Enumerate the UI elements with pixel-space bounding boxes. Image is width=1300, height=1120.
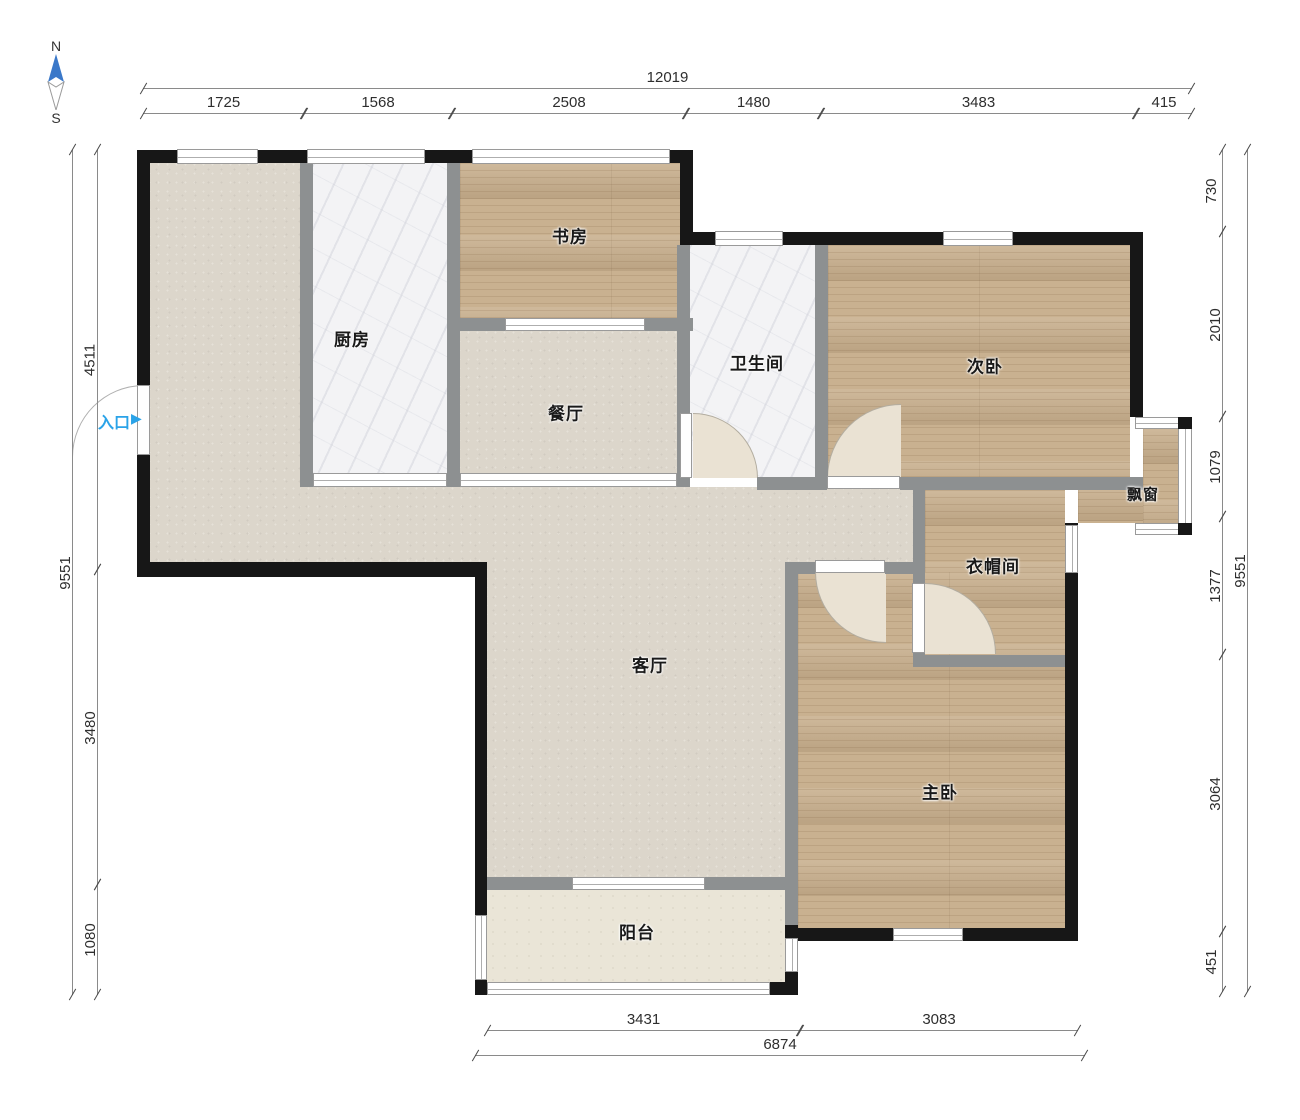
- sliding-door-kitchen: [313, 473, 447, 487]
- wall: [885, 562, 925, 574]
- sliding-door-dining: [460, 473, 677, 487]
- wall: [900, 477, 1143, 490]
- dim-segment: 1480: [686, 113, 821, 114]
- wall-exterior: [785, 970, 798, 995]
- compass-south-label: S: [36, 110, 76, 126]
- wall: [785, 562, 798, 928]
- dim-segment: 3480: [97, 570, 98, 885]
- wall-exterior: [790, 928, 893, 941]
- window: [472, 149, 670, 164]
- window-bay-right: [1178, 417, 1192, 535]
- dim-segment: 1079: [1222, 417, 1223, 517]
- floor-hallway: [150, 163, 300, 562]
- room-label-living-room: 客厅: [632, 652, 668, 677]
- floor-living-main: [487, 487, 690, 878]
- window: [715, 231, 783, 246]
- dim-segment: 415: [1136, 113, 1192, 114]
- wall-exterior: [137, 150, 150, 385]
- room-label-master-bedroom: 主卧: [922, 779, 958, 804]
- floor-corridor: [790, 487, 913, 562]
- dim-total-top: 12019: [143, 88, 1192, 89]
- dim-segment: 1080: [97, 885, 98, 995]
- sliding-door-balcony: [572, 877, 705, 890]
- window: [943, 231, 1013, 246]
- window: [177, 149, 258, 164]
- floor-plan: 书房 厨房 餐厅 卫生间 次卧 飘窗 衣帽间 客厅 主卧 阳台 入口 ▶ N S…: [0, 0, 1300, 1120]
- wall-exterior: [693, 232, 715, 245]
- room-label-second-bedroom: 次卧: [967, 353, 1003, 378]
- floor-living-right: [690, 487, 790, 878]
- compass: N S: [36, 38, 76, 128]
- dim-segment: 451: [1222, 932, 1223, 992]
- door-bathroom: [680, 413, 692, 478]
- dim-segment: 1377: [1222, 517, 1223, 655]
- wall-exterior: [1065, 523, 1078, 940]
- window: [785, 938, 798, 972]
- wall-exterior: [1178, 523, 1192, 535]
- compass-needle-icon: [43, 54, 69, 110]
- wall-exterior: [475, 980, 487, 995]
- wall: [785, 562, 815, 574]
- dim-segment: 4511: [97, 150, 98, 570]
- wall-exterior: [680, 150, 693, 245]
- dim-segment: 2010: [1222, 232, 1223, 417]
- dim-segment: 3064: [1222, 655, 1223, 932]
- wall: [815, 245, 828, 477]
- window-balcony: [487, 982, 770, 995]
- room-label-balcony: 阳台: [619, 919, 655, 944]
- room-label-study: 书房: [552, 223, 588, 248]
- wall-exterior: [1130, 232, 1143, 417]
- room-label-dining: 餐厅: [548, 400, 584, 425]
- wall-exterior: [1178, 417, 1192, 429]
- door-cloakroom: [912, 583, 925, 653]
- floor-bay-window: [1143, 428, 1178, 523]
- dim-total-bottom: 6874: [475, 1055, 1085, 1056]
- room-label-cloakroom: 衣帽间: [966, 553, 1020, 578]
- wall-exterior: [475, 575, 487, 915]
- wall: [300, 163, 313, 473]
- wall-exterior: [137, 562, 487, 577]
- dim-total-left: 9551: [72, 150, 73, 995]
- room-label-kitchen: 厨房: [334, 326, 370, 351]
- dim-segment: 1568: [304, 113, 452, 114]
- entrance-label: 入口: [98, 409, 130, 433]
- dim-total-right: 9551: [1247, 150, 1248, 992]
- dim-segment: 730: [1222, 150, 1223, 232]
- room-label-bay-window: 飘窗: [1127, 484, 1159, 505]
- wall-exterior: [783, 232, 943, 245]
- window: [1065, 525, 1078, 573]
- window-master: [893, 928, 963, 941]
- wall: [785, 890, 798, 928]
- entrance-arrow-icon: ▶: [131, 410, 142, 427]
- window-study-sill: [505, 318, 645, 331]
- wall-exterior: [963, 928, 1078, 941]
- wall-exterior: [137, 150, 177, 163]
- room-label-bathroom: 卫生间: [730, 350, 784, 375]
- wall: [757, 477, 827, 490]
- dim-segment: 2508: [452, 113, 686, 114]
- wall-exterior: [425, 150, 472, 163]
- dim-segment: 3483: [821, 113, 1136, 114]
- door-master-bedroom: [815, 560, 885, 573]
- dim-segment: 1725: [143, 113, 304, 114]
- dim-segment: 3083: [800, 1030, 1078, 1031]
- wall-exterior: [137, 455, 150, 577]
- wall-exterior: [258, 150, 307, 163]
- window: [307, 149, 425, 164]
- floor-living-strip: [300, 487, 487, 562]
- wall: [913, 655, 1065, 667]
- compass-north-label: N: [36, 38, 76, 54]
- floor-kitchen: [313, 163, 447, 473]
- dim-segment: 3431: [487, 1030, 800, 1031]
- door-second-bedroom: [827, 476, 900, 489]
- window: [475, 915, 487, 980]
- wall-exterior: [1013, 232, 1143, 245]
